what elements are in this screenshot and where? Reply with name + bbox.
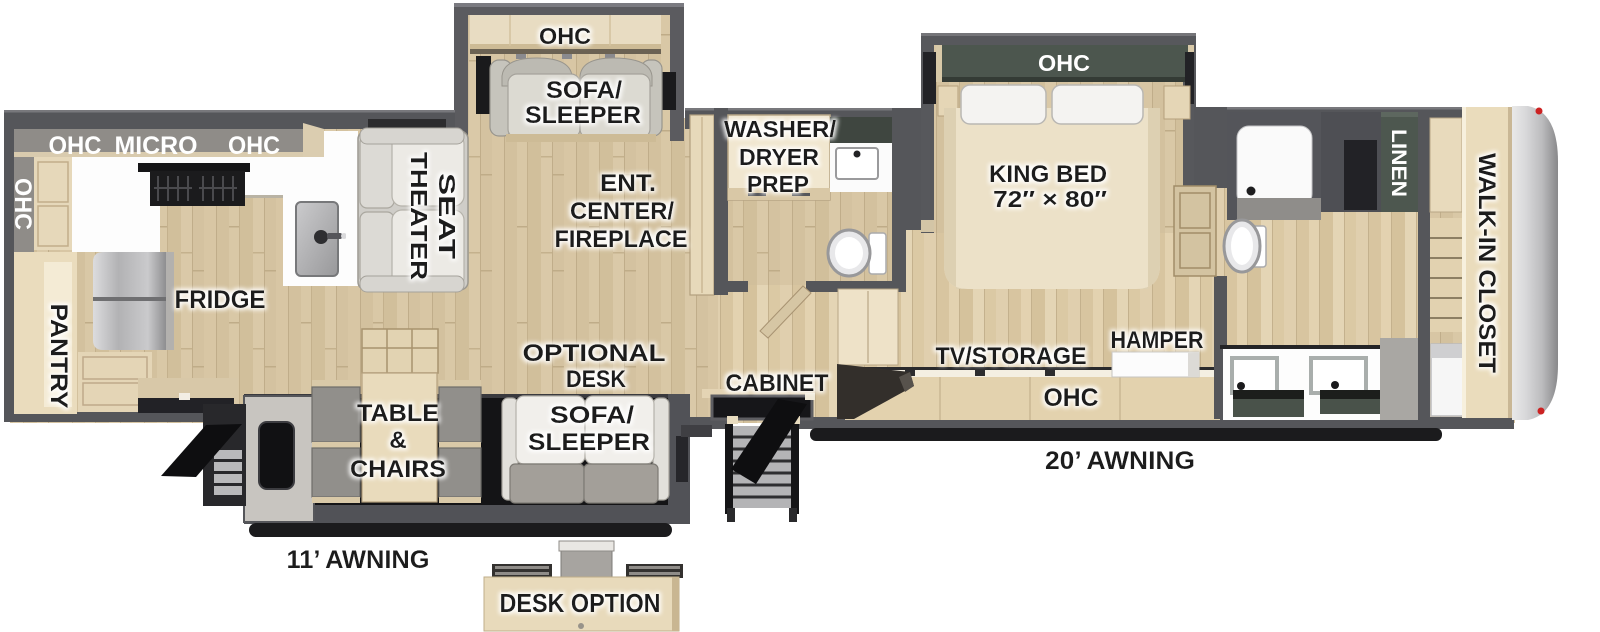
svg-text:PANTRY: PANTRY: [45, 304, 72, 409]
svg-text:&: &: [389, 427, 406, 454]
svg-text:SOFA/: SOFA/: [546, 77, 622, 104]
svg-text:SLEEPER: SLEEPER: [525, 102, 641, 129]
svg-text:PREP: PREP: [747, 171, 809, 197]
svg-text:DRYER: DRYER: [739, 144, 819, 170]
svg-text:TV/STORAGE: TV/STORAGE: [936, 343, 1087, 370]
svg-text:WALK-IN CLOSET: WALK-IN CLOSET: [1473, 153, 1500, 373]
svg-text:OHC: OHC: [49, 132, 102, 160]
svg-text:WASHER/: WASHER/: [724, 116, 837, 142]
svg-text:OHC: OHC: [1038, 50, 1090, 76]
svg-text:SEAT: SEAT: [434, 173, 460, 259]
svg-text:KING BED: KING BED: [989, 161, 1107, 188]
svg-text:MICRO: MICRO: [115, 132, 198, 160]
svg-text:DESK OPTION: DESK OPTION: [500, 588, 661, 618]
svg-text:OHC: OHC: [1044, 384, 1099, 412]
svg-text:LINEN: LINEN: [1387, 129, 1410, 197]
svg-text:11’ AWNING: 11’ AWNING: [287, 546, 430, 574]
svg-text:20’ AWNING: 20’ AWNING: [1045, 447, 1195, 475]
svg-text:TABLE: TABLE: [357, 400, 439, 427]
svg-text:OPTIONAL: OPTIONAL: [523, 340, 666, 367]
svg-text:CABINET: CABINET: [726, 370, 829, 397]
svg-text:FIREPLACE: FIREPLACE: [555, 226, 688, 253]
svg-text:DESK: DESK: [566, 366, 627, 393]
svg-text:FRIDGE: FRIDGE: [175, 286, 266, 314]
svg-text:CENTER/: CENTER/: [570, 198, 674, 225]
svg-text:72″ × 80″: 72″ × 80″: [993, 186, 1107, 212]
svg-text:HAMPER: HAMPER: [1111, 327, 1204, 354]
svg-text:ENT.: ENT.: [600, 170, 656, 197]
svg-text:OHC: OHC: [228, 132, 280, 160]
svg-text:SOFA/: SOFA/: [550, 402, 634, 429]
svg-text:OHC: OHC: [539, 23, 591, 49]
svg-text:THEATER: THEATER: [406, 152, 432, 280]
svg-text:CHAIRS: CHAIRS: [350, 456, 446, 483]
svg-text:OHC: OHC: [9, 178, 36, 230]
svg-text:SLEEPER: SLEEPER: [528, 429, 650, 456]
